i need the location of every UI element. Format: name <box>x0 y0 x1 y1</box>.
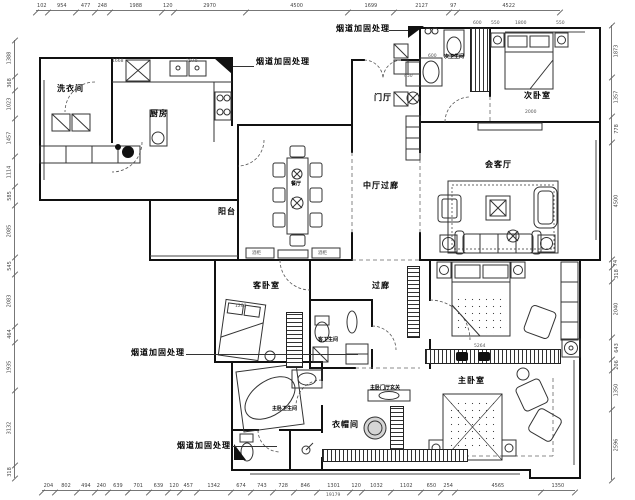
room-label-dining: 餐厅 <box>291 181 301 187</box>
room-label-master-bedroom: 主卧室 <box>458 376 485 385</box>
dim-value: 1357 <box>614 91 620 104</box>
dim-segment: 2970 <box>174 4 246 10</box>
room-label-guest-bath: 客卫生间 <box>318 337 338 343</box>
dim-segment: 639 <box>149 484 169 490</box>
dim-segment: 1457 <box>5 119 14 157</box>
dim-value: 1699 <box>365 3 378 9</box>
dim-segment: 368 <box>5 76 14 90</box>
bed-quilt-dots <box>455 296 507 334</box>
dim-segment: 1301 <box>317 484 351 490</box>
inline-dim: 600 <box>473 21 482 26</box>
inline-dim: 450 <box>404 74 413 79</box>
dim-value: 585 <box>7 191 13 201</box>
dim-segment: 545 <box>5 257 14 275</box>
shoe-glyph <box>456 352 468 361</box>
dim-value: 4500 <box>614 194 620 207</box>
dim-value: 4565 <box>491 483 504 489</box>
dim-value: 477 <box>81 3 91 9</box>
dim-segment: 4522 <box>457 4 560 10</box>
leader-line <box>233 66 254 67</box>
dim-value: 639 <box>113 483 123 489</box>
dim-segment: 674 <box>231 484 251 490</box>
dim-value: 728 <box>278 483 288 489</box>
dim-value: 2040 <box>614 303 620 316</box>
dim-segment: 1023 <box>5 90 14 118</box>
closet-rail-bottom <box>322 449 468 462</box>
dimension-row-top: 1029544772481988120297045001699212797452… <box>36 1 560 11</box>
leader-line <box>186 354 358 355</box>
dim-segment: 4500 <box>612 142 621 259</box>
inline-dim: 2000 <box>525 110 536 115</box>
dim-value: 1988 <box>129 3 142 9</box>
room-label-corridor: 过廊 <box>372 281 390 290</box>
inline-dim: 5264 <box>474 344 485 349</box>
dim-segment: 743 <box>251 484 272 490</box>
dim-value: 1350 <box>551 483 564 489</box>
dim-value: 1102 <box>400 483 413 489</box>
dim-segment: 240 <box>95 484 108 490</box>
dim-segment: 204 <box>42 484 55 490</box>
dim-segment: 1935 <box>5 343 14 391</box>
dim-segment: 477 <box>76 4 95 10</box>
dim-value: 457 <box>183 483 193 489</box>
dimension-row-right: 18731357778450074318204064320613502596 <box>611 25 621 480</box>
dim-segment: 846 <box>294 484 317 490</box>
room-label-kitchen: 厨房 <box>150 109 168 118</box>
inline-dim: 2970 <box>186 59 197 64</box>
dim-segment: 954 <box>48 4 77 10</box>
dim-value: 120 <box>163 3 173 9</box>
dim-segment: 2127 <box>394 4 449 10</box>
inline-dim: 550 <box>556 21 565 26</box>
room-label-laundry: 洗衣间 <box>57 84 84 93</box>
flue-annotation: 烟道加固处理 <box>131 348 185 357</box>
dim-value: 1032 <box>370 483 383 489</box>
inline-dim: 1800 <box>515 21 526 26</box>
leader-line <box>389 30 408 31</box>
dim-segment: 3132 <box>5 391 14 465</box>
dim-segment: 2085 <box>5 206 14 258</box>
dim-segment: 639 <box>108 484 128 490</box>
dim-segment: 1114 <box>5 156 14 186</box>
floor-plan-canvas: 洗衣间 厨房 餐厅 阳台 门厅 中厅过廊 次卫生间 次卧室 会客厅 客卧室 过廊… <box>0 0 635 500</box>
dim-value: 3132 <box>7 422 13 435</box>
dim-value: 643 <box>614 344 620 354</box>
dim-segment: 120 <box>168 484 179 490</box>
shoe-rack-corridor <box>407 266 420 338</box>
dim-segment: 778 <box>612 117 621 142</box>
dim-value: 1342 <box>207 483 220 489</box>
room-label-closet: 衣帽间 <box>332 420 359 429</box>
room-label-foyer: 门厅 <box>374 93 392 102</box>
dim-value: 2127 <box>415 3 428 9</box>
dim-value: 545 <box>7 261 13 271</box>
dim-value: 1935 <box>7 360 13 373</box>
wine-cabinet-label: 酒柜 <box>252 251 261 256</box>
flue-annotation: 烟道加固处理 <box>177 441 231 450</box>
dim-segment: 728 <box>273 484 294 490</box>
dim-value: 318 <box>7 467 13 477</box>
dim-value: 802 <box>61 483 71 489</box>
dim-value: 97 <box>450 3 456 9</box>
dim-value: 2596 <box>614 439 620 452</box>
dim-value: 1023 <box>7 98 13 111</box>
dim-value: 650 <box>427 483 437 489</box>
dim-segment: 2596 <box>612 410 621 480</box>
wardrobe-hatch-master <box>425 349 561 364</box>
dim-segment: 1988 <box>110 4 162 10</box>
dim-value: 674 <box>236 483 246 489</box>
room-label-balcony: 阳台 <box>218 207 236 216</box>
dim-value: 2970 <box>203 3 216 9</box>
room-label-sec-bath: 次卫生间 <box>444 54 464 60</box>
dim-value: 743 <box>257 483 267 489</box>
dim-segment: 102 <box>36 4 48 10</box>
dim-value: 254 <box>443 483 453 489</box>
dim-segment: 1350 <box>541 484 575 490</box>
dim-value: 240 <box>97 483 107 489</box>
closet-rail-side <box>390 406 404 450</box>
dimension-row-left: 1388368102314571114585208554520834641935… <box>5 40 15 478</box>
room-label-guest-bedroom: 客卧室 <box>253 281 280 290</box>
dim-segment: 802 <box>55 484 77 490</box>
flue-annotation: 烟道加固处理 <box>256 57 310 66</box>
dim-segment: 318 <box>5 465 14 478</box>
room-label-master-bath: 主卧卫生间 <box>272 406 297 412</box>
dim-value: 1873 <box>614 45 620 58</box>
inline-dim: 1200 <box>235 304 246 309</box>
dim-segment: 248 <box>95 4 109 10</box>
dim-segment: 457 <box>180 484 197 490</box>
leader-line <box>232 446 277 447</box>
dimension-row-bottom: 2048024942406397016391204571342674743728… <box>42 481 575 491</box>
dim-value: 120 <box>351 483 361 489</box>
dim-segment: 650 <box>421 484 441 490</box>
dim-value: 4522 <box>502 3 515 9</box>
dim-segment: 1342 <box>197 484 231 490</box>
dim-segment: 1388 <box>5 40 14 76</box>
dim-value: 464 <box>7 330 13 340</box>
dim-value: 1457 <box>7 131 13 144</box>
inline-dim: 1668 <box>112 59 123 64</box>
dim-segment: 1032 <box>362 484 391 490</box>
dim-segment: 494 <box>77 484 94 490</box>
wine-cabinet-label: 酒柜 <box>318 251 327 256</box>
room-label-master-foyer: 主卧门厅玄关 <box>370 385 400 391</box>
dim-value: 1388 <box>7 52 13 65</box>
dim-segment: 464 <box>5 326 14 342</box>
dim-segment: 120 <box>350 484 361 490</box>
dim-segment: 4565 <box>455 484 541 490</box>
room-label-sec-bedroom: 次卧室 <box>524 91 551 100</box>
dim-value: 954 <box>57 3 67 9</box>
dim-value: 1301 <box>327 483 340 489</box>
dim-value: 120 <box>169 483 179 489</box>
dim-segment: 701 <box>128 484 149 490</box>
wardrobe-hatch-guest <box>286 312 303 368</box>
tatami-dots <box>448 400 496 452</box>
dim-segment: 1102 <box>391 484 421 490</box>
inline-dim: 600 <box>428 54 437 59</box>
dim-segment: 1873 <box>612 25 621 77</box>
dim-value: 778 <box>614 125 620 135</box>
dim-value: 2085 <box>7 225 13 238</box>
dim-value: 1114 <box>7 165 13 178</box>
dim-value: 102 <box>37 3 47 9</box>
dim-value: 639 <box>154 483 164 489</box>
dim-segment: 1699 <box>348 4 394 10</box>
dim-segment: 1357 <box>612 77 621 117</box>
inline-dim: 550 <box>491 21 500 26</box>
dim-segment: 2083 <box>5 275 14 326</box>
room-label-living: 会客厅 <box>485 160 512 169</box>
dim-value: 4500 <box>290 3 303 9</box>
dim-value: 846 <box>301 483 311 489</box>
inline-dim: 19179 <box>326 493 340 498</box>
room-label-central-hall: 中厅过廊 <box>363 181 399 190</box>
dim-segment: 1350 <box>612 370 621 409</box>
dim-segment: 585 <box>5 187 14 206</box>
dim-value: 368 <box>7 79 13 89</box>
dim-segment: 4500 <box>246 4 348 10</box>
dim-value: 248 <box>98 3 108 9</box>
dim-value: 204 <box>44 483 54 489</box>
dim-segment: 2040 <box>612 281 621 337</box>
floorplan-linework <box>0 0 635 500</box>
dim-value: 1350 <box>614 384 620 397</box>
flue-annotation: 烟道加固处理 <box>336 24 390 33</box>
dim-segment: 120 <box>162 4 174 10</box>
shoe-glyph <box>478 352 490 361</box>
dim-segment: 254 <box>441 484 455 490</box>
dim-value: 2083 <box>7 294 13 307</box>
dim-value: 494 <box>81 483 91 489</box>
dim-value: 701 <box>133 483 143 489</box>
wardrobe-hatch-secondary <box>470 28 490 92</box>
dim-segment: 97 <box>449 4 457 10</box>
